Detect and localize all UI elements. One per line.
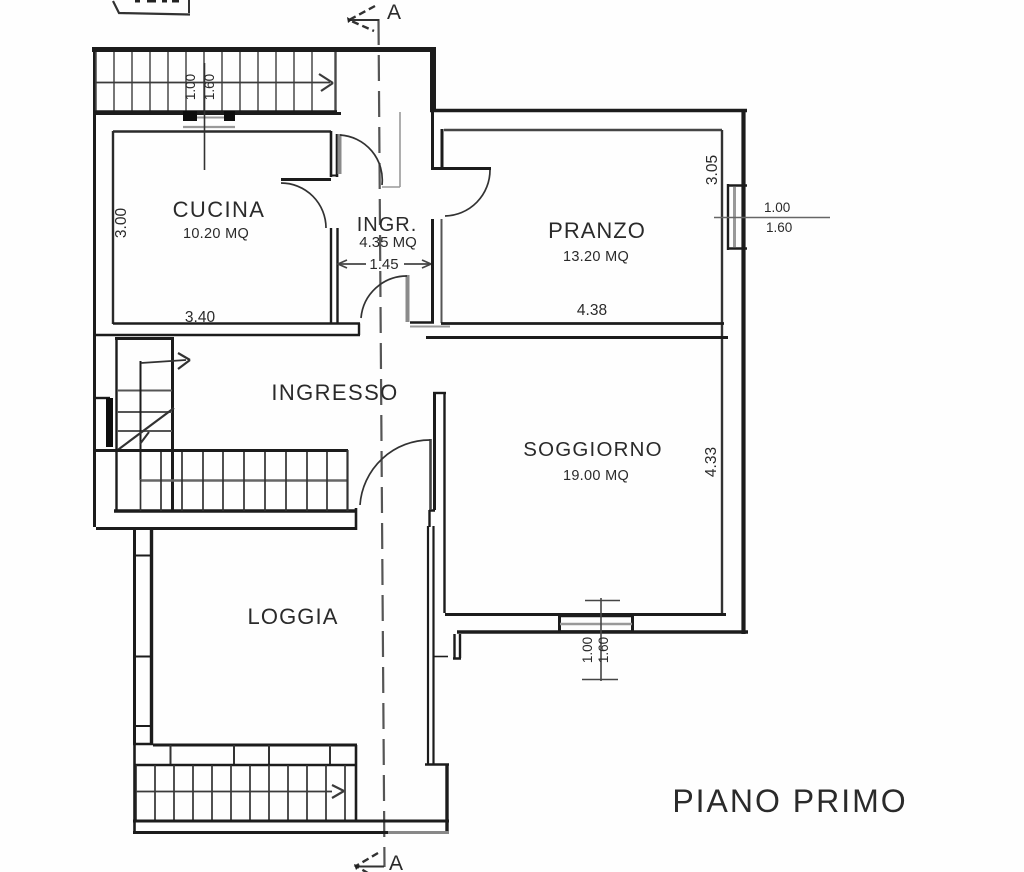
svg-text:1.45: 1.45 [369,256,398,273]
svg-text:LOGGIA: LOGGIA [248,604,339,629]
svg-text:3.05: 3.05 [704,155,721,185]
svg-text:1.00: 1.00 [580,637,595,663]
svg-text:INGRESSO: INGRESSO [271,380,398,405]
svg-text:4.35 MQ: 4.35 MQ [359,234,417,251]
svg-text:1.60: 1.60 [596,637,611,663]
svg-text:PIANO PRIMO: PIANO PRIMO [672,783,907,819]
svg-text:4.33: 4.33 [703,447,720,477]
svg-text:19.00 MQ: 19.00 MQ [563,468,629,484]
svg-text:10.20 MQ: 10.20 MQ [183,226,249,242]
svg-text:1.00: 1.00 [764,200,790,215]
svg-text:13.20 MQ: 13.20 MQ [563,249,629,265]
svg-text:PRANZO: PRANZO [548,218,646,243]
svg-text:3.00: 3.00 [113,208,130,239]
svg-text:SOGGIORNO: SOGGIORNO [523,438,663,461]
svg-text:A: A [387,1,401,24]
svg-text:INGR.: INGR. [357,214,418,236]
svg-text:CUCINA: CUCINA [173,197,266,222]
svg-text:4.38: 4.38 [577,302,607,319]
svg-text:1.00: 1.00 [183,74,198,100]
svg-text:1.60: 1.60 [766,220,792,235]
svg-text:A: A [389,852,403,872]
svg-text:1.60: 1.60 [202,74,217,100]
